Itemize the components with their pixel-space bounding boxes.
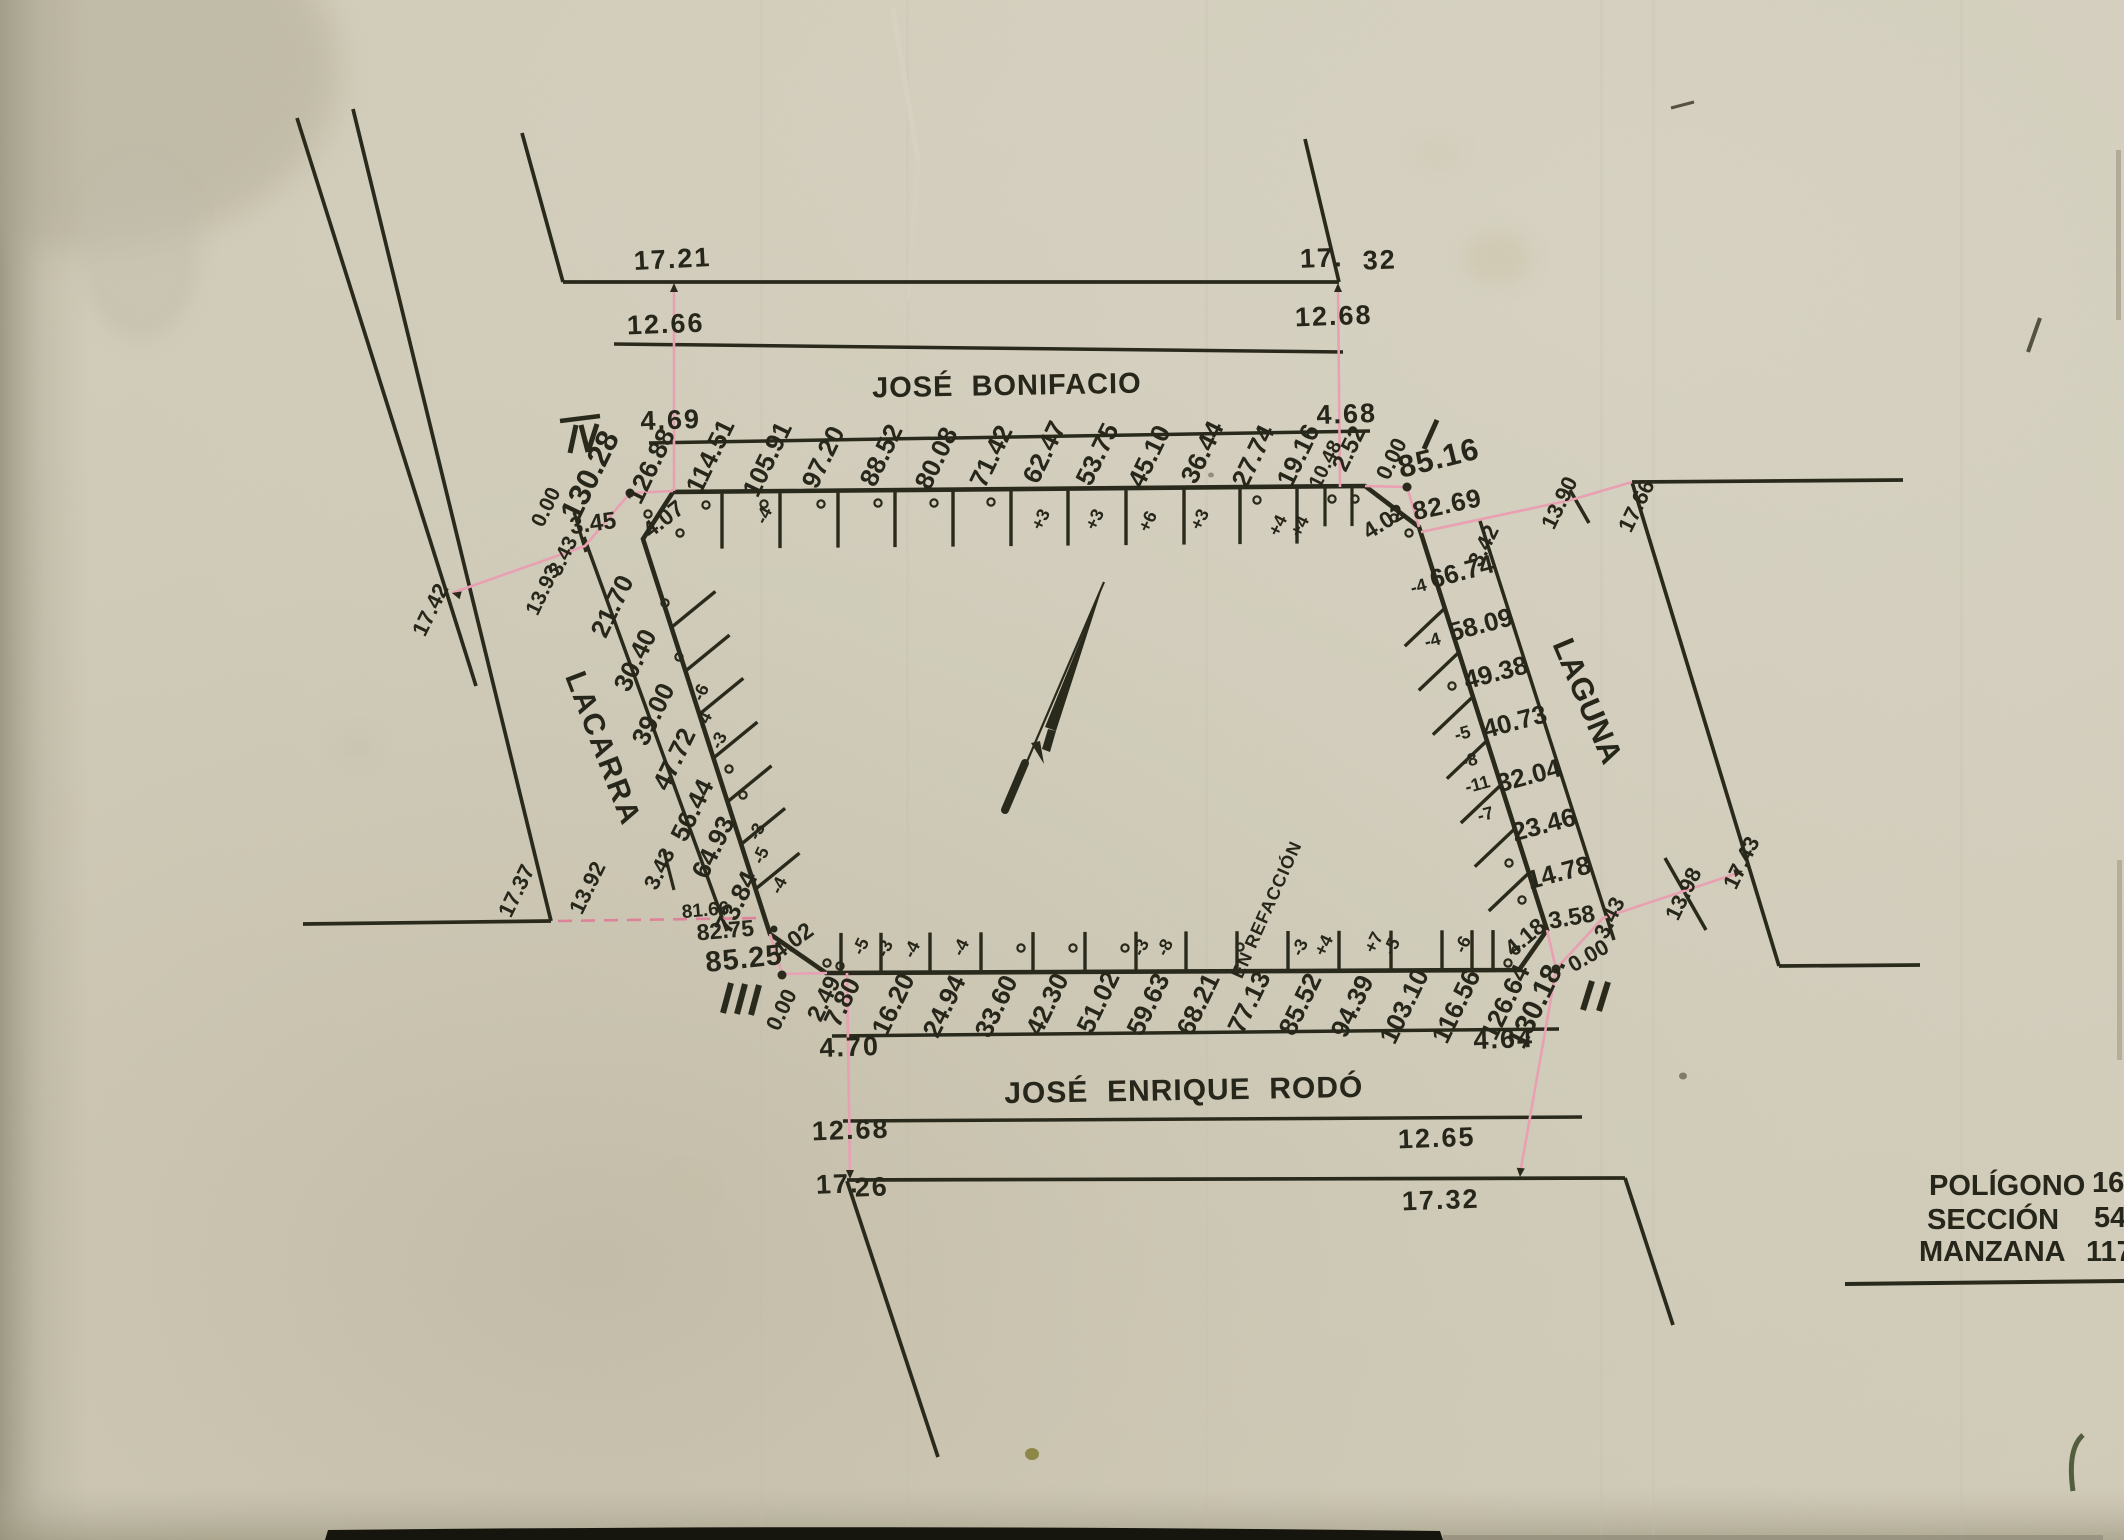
svg-text:16: 16 <box>2092 1167 2124 1199</box>
svg-text:POLÍGONO: POLÍGONO <box>1929 1168 2085 1202</box>
svg-text:32: 32 <box>1362 244 1397 275</box>
svg-text:JOSÉ BONIFACIO: JOSÉ BONIFACIO <box>872 366 1142 405</box>
svg-text:4.64: 4.64 <box>1473 1023 1535 1055</box>
svg-text:54: 54 <box>2094 1202 2124 1234</box>
svg-text:12.65: 12.65 <box>1397 1122 1476 1155</box>
svg-text:17.21: 17.21 <box>633 242 712 276</box>
svg-text:4.70: 4.70 <box>819 1031 881 1063</box>
svg-text:MANZANA: MANZANA <box>1919 1236 2066 1268</box>
svg-text:12.66: 12.66 <box>626 308 705 341</box>
svg-text:JOSÉ ENRIQUE RODÓ: JOSÉ ENRIQUE RODÓ <box>1004 1070 1364 1110</box>
svg-text:26: 26 <box>854 1171 889 1202</box>
svg-text:4.69: 4.69 <box>640 404 702 436</box>
svg-text:17.32: 17.32 <box>1401 1184 1480 1217</box>
svg-text:12.68: 12.68 <box>811 1114 890 1147</box>
svg-text:12.68: 12.68 <box>1294 300 1373 333</box>
svg-text:SECCIÓN: SECCIÓN <box>1927 1202 2059 1236</box>
svg-text:17.: 17. <box>1299 242 1344 274</box>
svg-text:117: 117 <box>2086 1236 2124 1268</box>
svg-text:4.68: 4.68 <box>1316 398 1378 430</box>
